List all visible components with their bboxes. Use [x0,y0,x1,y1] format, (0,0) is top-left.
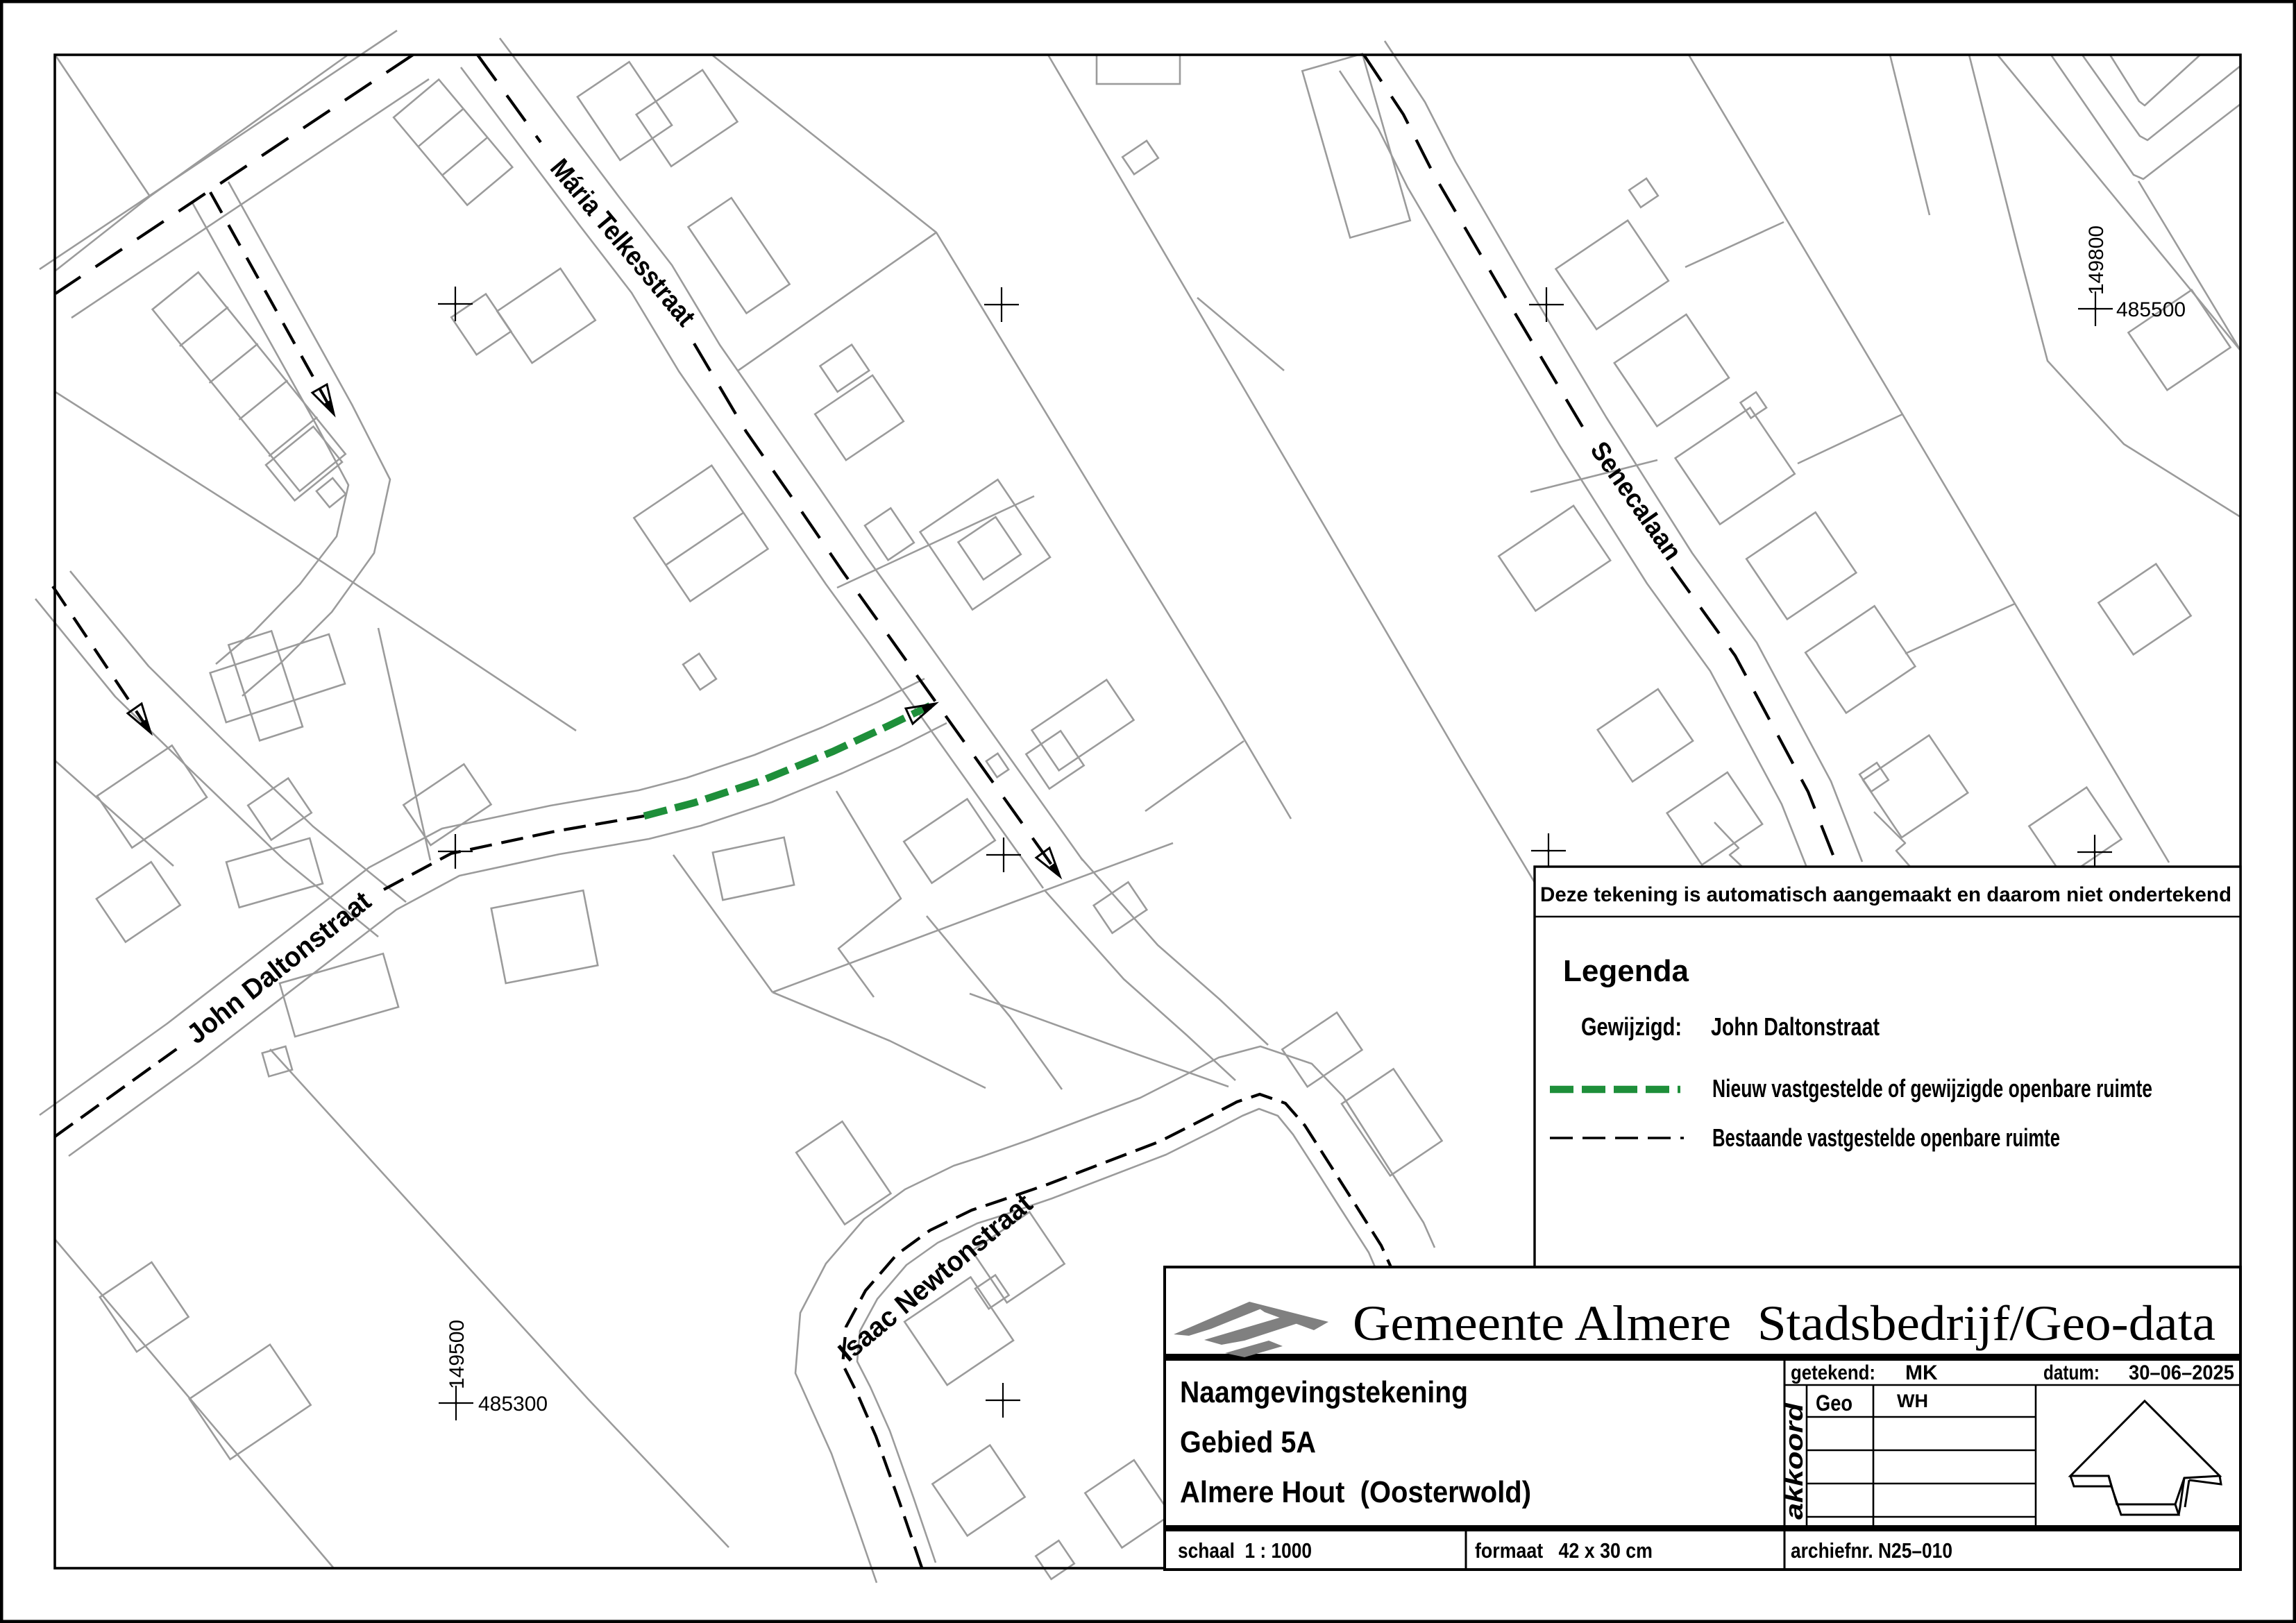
svg-text:MK: MK [1905,1361,1938,1384]
svg-text:Nieuw vastgestelde of gewijzig: Nieuw vastgestelde of gewijzigde openbar… [1712,1074,2152,1103]
svg-text:30–06–2025: 30–06–2025 [2129,1361,2234,1384]
svg-text:Almere Hout (Oosterwold): Almere Hout (Oosterwold) [1180,1475,1531,1509]
svg-text:485500: 485500 [2116,298,2186,321]
svg-text:149500: 149500 [446,1320,469,1389]
svg-text:Geo: Geo [1816,1391,1852,1416]
svg-text:formaat 42 x 30 cm: formaat 42 x 30 cm [1475,1538,1653,1563]
svg-text:Deze tekening is automatisch a: Deze tekening is automatisch aangemaakt … [1540,883,2231,906]
svg-text:485300: 485300 [478,1393,548,1416]
svg-text:archiefnr. N25–010: archiefnr. N25–010 [1791,1538,1952,1563]
svg-text:getekend:: getekend: [1791,1361,1875,1384]
svg-text:149800: 149800 [2085,226,2108,295]
svg-text:Gebied 5A: Gebied 5A [1180,1425,1316,1459]
svg-text:akkoord: akkoord [1780,1402,1808,1520]
svg-text:Gemeente Almere Stadsbedrijf/: Gemeente Almere Stadsbedrijf/Geo-data [1353,1295,2215,1351]
svg-text:schaal 1 : 1000: schaal 1 : 1000 [1178,1538,1312,1563]
svg-text:Gewijzigd:: Gewijzigd: [1581,1012,1682,1041]
svg-text:datum:: datum: [2043,1361,2100,1384]
svg-text:WH: WH [1897,1391,1928,1411]
svg-text:Bestaande vastgestelde openbar: Bestaande vastgestelde openbare ruimte [1712,1123,2060,1152]
svg-text:John Daltonstraat: John Daltonstraat [1711,1012,1880,1041]
svg-text:Legenda: Legenda [1563,954,1689,988]
svg-text:Naamgevingstekening: Naamgevingstekening [1180,1375,1468,1409]
